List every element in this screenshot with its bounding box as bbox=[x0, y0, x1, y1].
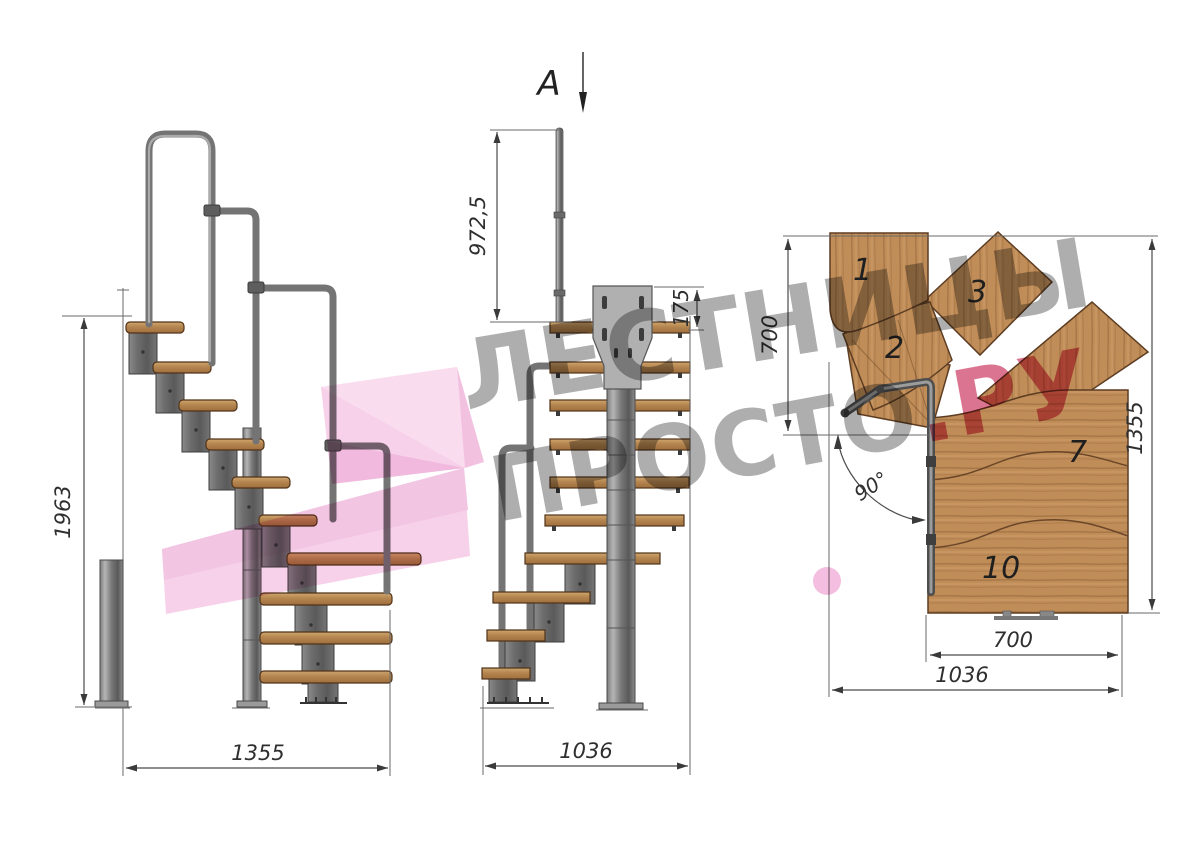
plan-exit-width-label: 700 bbox=[993, 628, 1033, 652]
side-length-label: 1355 bbox=[231, 741, 284, 765]
plan-step-10-number: 10 bbox=[982, 551, 1020, 586]
section-marker: A bbox=[535, 52, 587, 113]
section-arrow-icon bbox=[579, 92, 587, 113]
side-column-base-flange bbox=[237, 701, 267, 707]
side-height-label: 1963 bbox=[51, 485, 75, 538]
section-marker-label: A bbox=[535, 64, 560, 104]
plan-depth-label: 1355 bbox=[1123, 401, 1147, 454]
plan-step-7-number: 7 bbox=[1068, 435, 1087, 470]
plan-total-width-label: 1036 bbox=[935, 663, 988, 687]
staircase-drawing-canvas: 1963 1355 A bbox=[0, 0, 1200, 849]
technical-drawing-page: 1963 1355 A bbox=[0, 0, 1200, 849]
front-column-base-flange bbox=[599, 703, 643, 709]
front-width-label: 1036 bbox=[559, 739, 612, 763]
rear-support-post bbox=[100, 560, 123, 703]
watermark-logo-dot bbox=[813, 567, 841, 595]
rear-post-base-flange bbox=[95, 701, 128, 707]
front-handrail-post bbox=[556, 128, 563, 331]
front-rail-height-label: 972,5 bbox=[466, 196, 490, 256]
